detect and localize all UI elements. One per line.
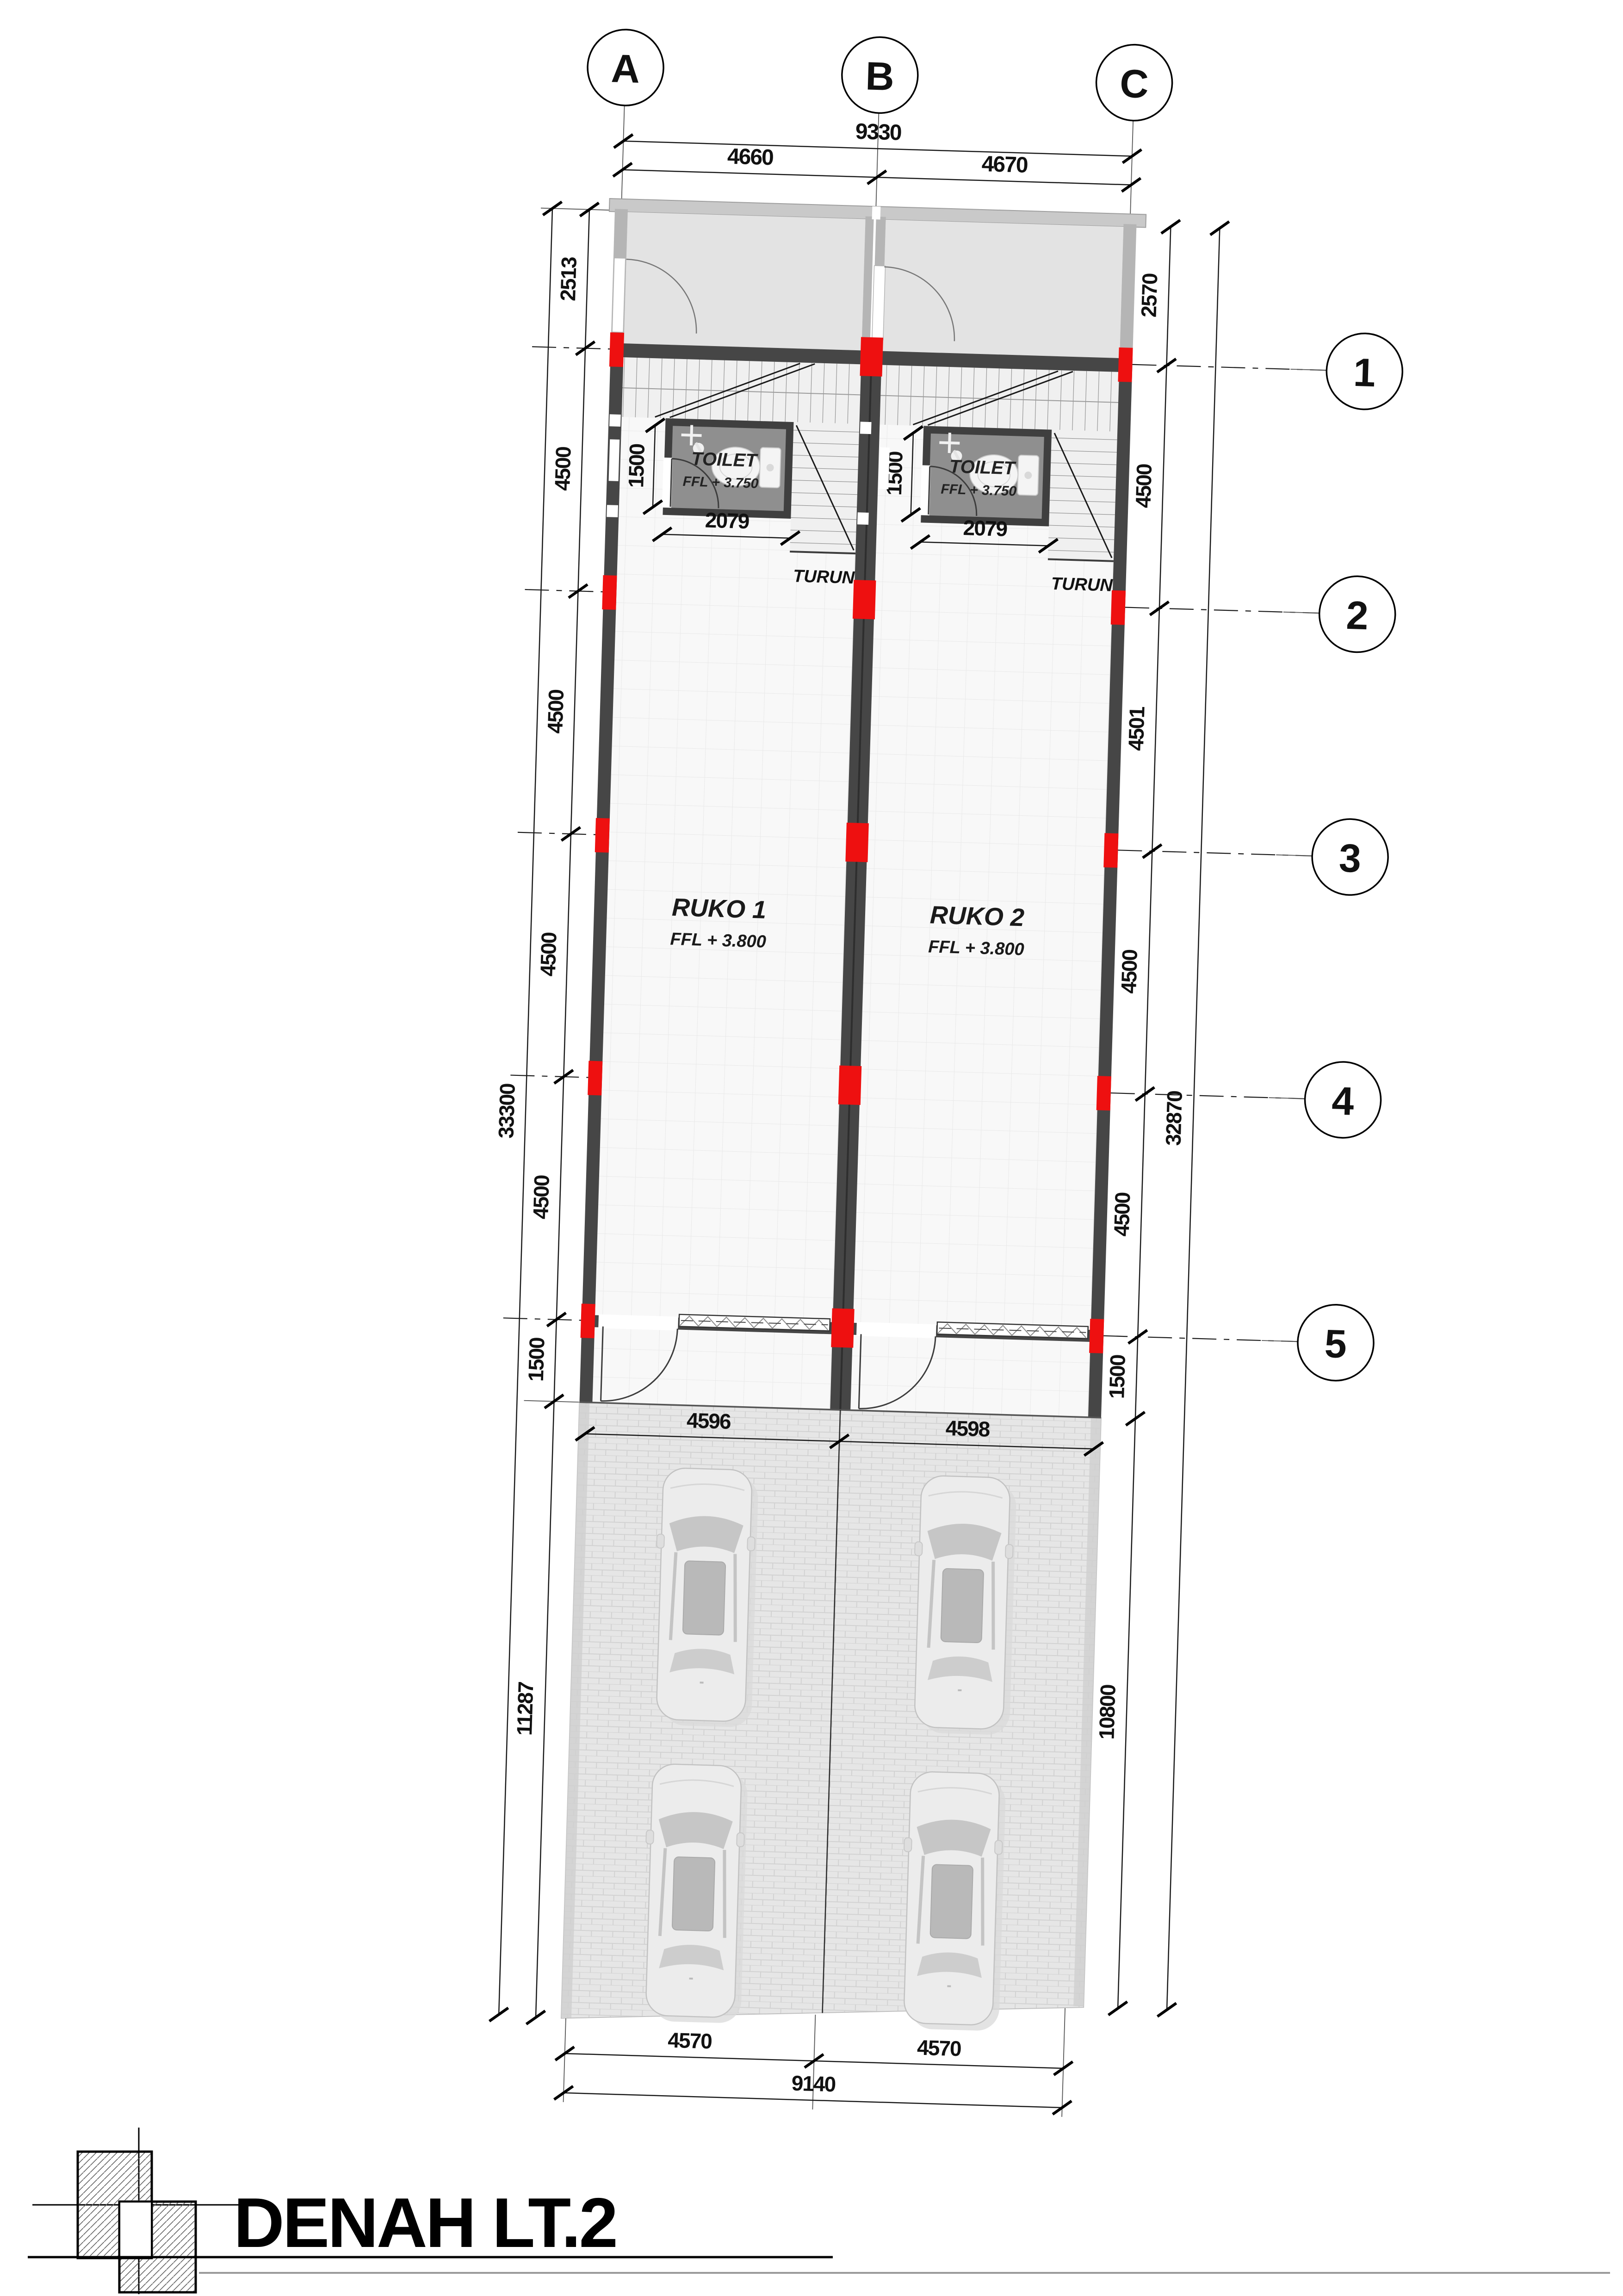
dim-left-1500: 1500 [524, 1337, 549, 1382]
dim-right-parking: 10800 [1094, 1684, 1120, 1740]
dim-right-overall: 32870 [1161, 1091, 1186, 1146]
ruko1-name: RUKO 1 [671, 894, 767, 924]
sheet-title: DENAH LT.2 [234, 2184, 616, 2262]
stair-down-label-2: TURUN [1051, 574, 1114, 596]
grid-label-C: C [1119, 62, 1149, 107]
dim-left-4500-4: 4500 [528, 1175, 554, 1219]
dim-left-overall: 33300 [494, 1083, 519, 1139]
grid-label-B: B [865, 54, 895, 99]
dim-right-4501: 4501 [1124, 706, 1149, 751]
grid-label-4: 4 [1331, 1079, 1355, 1123]
dim-right-1500: 1500 [1104, 1354, 1130, 1399]
toilet-label-2: TOILET [949, 456, 1016, 478]
stair-down-label-1: TURUN [793, 566, 856, 588]
dim-top-ab: 4660 [727, 144, 774, 170]
dim-right-4500-1: 4500 [1131, 464, 1156, 508]
dim-left-4500-2: 4500 [543, 689, 568, 734]
car [641, 1763, 748, 2023]
dim-left-2513: 2513 [556, 257, 581, 301]
dim-site-left: 4570 [668, 2028, 712, 2054]
entry-gap-1 [598, 1314, 678, 1330]
toilet-ffl-2: FFL + 3.750 [941, 482, 1017, 499]
dim-front-bc: 4598 [945, 1416, 990, 1441]
plan-rotated-group: A B C 9330 4660 4670 [465, 27, 1412, 2126]
car [910, 1475, 1017, 1735]
toilet-dim-h-1: 1500 [624, 444, 649, 488]
grid-label-1: 1 [1353, 350, 1376, 395]
grid-label-5: 5 [1324, 1322, 1348, 1366]
void-room-2-door-leaf [872, 266, 886, 340]
dim-site-total: 9140 [791, 2071, 836, 2097]
dim-left-4500-1: 4500 [550, 447, 576, 491]
toilet-ffl-1: FFL + 3.750 [682, 474, 759, 491]
dim-right-4500-3: 4500 [1109, 1192, 1135, 1237]
dim-top-total: 9330 [855, 119, 902, 145]
car [899, 1771, 1006, 2031]
dim-right-2570: 2570 [1137, 273, 1162, 317]
grid-label-3: 3 [1338, 836, 1362, 881]
dim-right-4500-2: 4500 [1116, 949, 1142, 994]
car [651, 1467, 759, 1727]
grid-label-2: 2 [1345, 593, 1369, 638]
floor-plan-drawing: A B C 9330 4660 4670 [0, 0, 1623, 2296]
ruko2-name: RUKO 2 [929, 901, 1025, 931]
dim-front-ab: 4596 [686, 1408, 731, 1433]
row-grid-bubbles: 1 2 3 4 5 [1261, 331, 1404, 1382]
grid-label-A: A [611, 46, 641, 92]
ruko1-ffl: FFL + 3.800 [670, 930, 767, 952]
toilet-dim-w-2: 2079 [963, 515, 1007, 541]
ruko2-ffl: FFL + 3.800 [928, 937, 1025, 959]
entry-gap-2 [856, 1322, 936, 1338]
upper-void-rooms [605, 199, 1146, 359]
void-room-2-floor [882, 220, 1123, 358]
grid-line-C [1130, 121, 1133, 228]
void-room-1-floor [624, 212, 865, 350]
dim-site-right: 4570 [917, 2035, 961, 2061]
dim-left-4500-3: 4500 [536, 932, 561, 977]
void-room-1-door-leaf [612, 258, 626, 332]
title-block: DENAH LT.2 [28, 2128, 1610, 2294]
toilet-dim-w-1: 2079 [705, 508, 749, 534]
dim-top-bc: 4670 [981, 152, 1028, 178]
grid-line-A [621, 105, 625, 212]
toilet-label-1: TOILET [691, 449, 759, 471]
floor-plan-sheet: A B C 9330 4660 4670 [0, 0, 1623, 2296]
parking-area [561, 1402, 1101, 2034]
dim-left-parking: 11287 [512, 1682, 538, 1736]
